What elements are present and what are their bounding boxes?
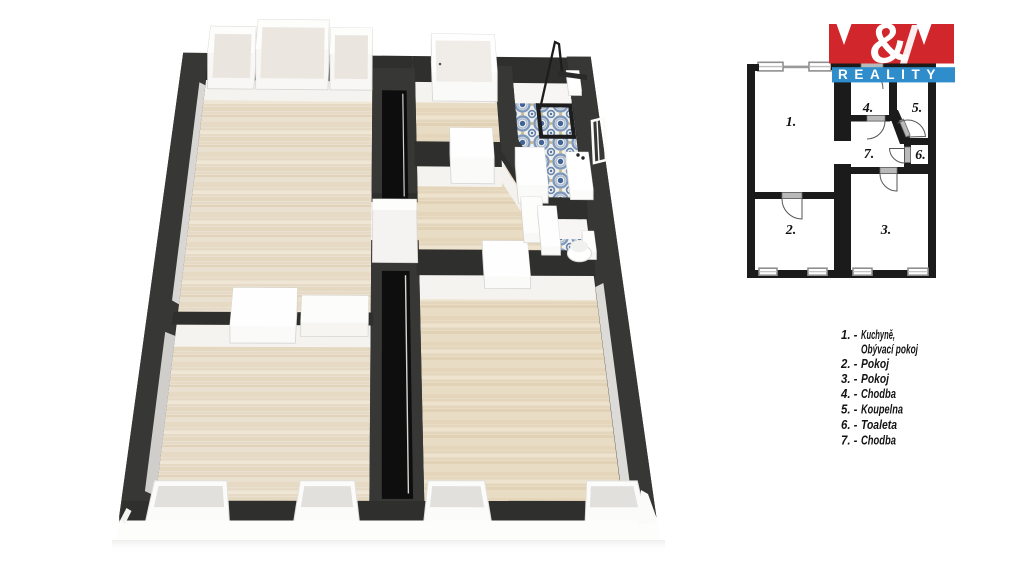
- svg-text:Chodba: Chodba: [861, 433, 896, 448]
- svg-text:5. -: 5. -: [841, 402, 858, 417]
- svg-text:Pokoj: Pokoj: [861, 371, 889, 386]
- svg-text:4.: 4.: [862, 101, 874, 116]
- svg-text:2. -: 2. -: [840, 356, 857, 371]
- svg-text:6. -: 6. -: [841, 417, 858, 432]
- svg-text:3.: 3.: [880, 223, 892, 238]
- svg-text:4. -: 4. -: [840, 386, 857, 401]
- svg-text:REALITY: REALITY: [838, 67, 942, 82]
- svg-text:1.: 1.: [786, 115, 797, 130]
- svg-text:Pokoj: Pokoj: [861, 356, 889, 371]
- svg-text:5.: 5.: [912, 101, 923, 116]
- svg-text:7. -: 7. -: [841, 433, 858, 448]
- svg-text:Chodba: Chodba: [861, 386, 896, 401]
- svg-text:Toaleta: Toaleta: [861, 417, 897, 432]
- svg-text:Obývací pokoj: Obývací pokoj: [861, 342, 918, 357]
- svg-text:&: &: [864, 9, 912, 76]
- svg-text:1. -: 1. -: [841, 327, 858, 342]
- svg-text:6.: 6.: [915, 148, 926, 163]
- svg-text:3. -: 3. -: [841, 371, 858, 386]
- svg-text:Kuchyně,: Kuchyně,: [861, 327, 895, 342]
- svg-text:2.: 2.: [785, 223, 797, 238]
- svg-text:Koupelna: Koupelna: [861, 402, 903, 417]
- svg-text:7.: 7.: [864, 147, 875, 162]
